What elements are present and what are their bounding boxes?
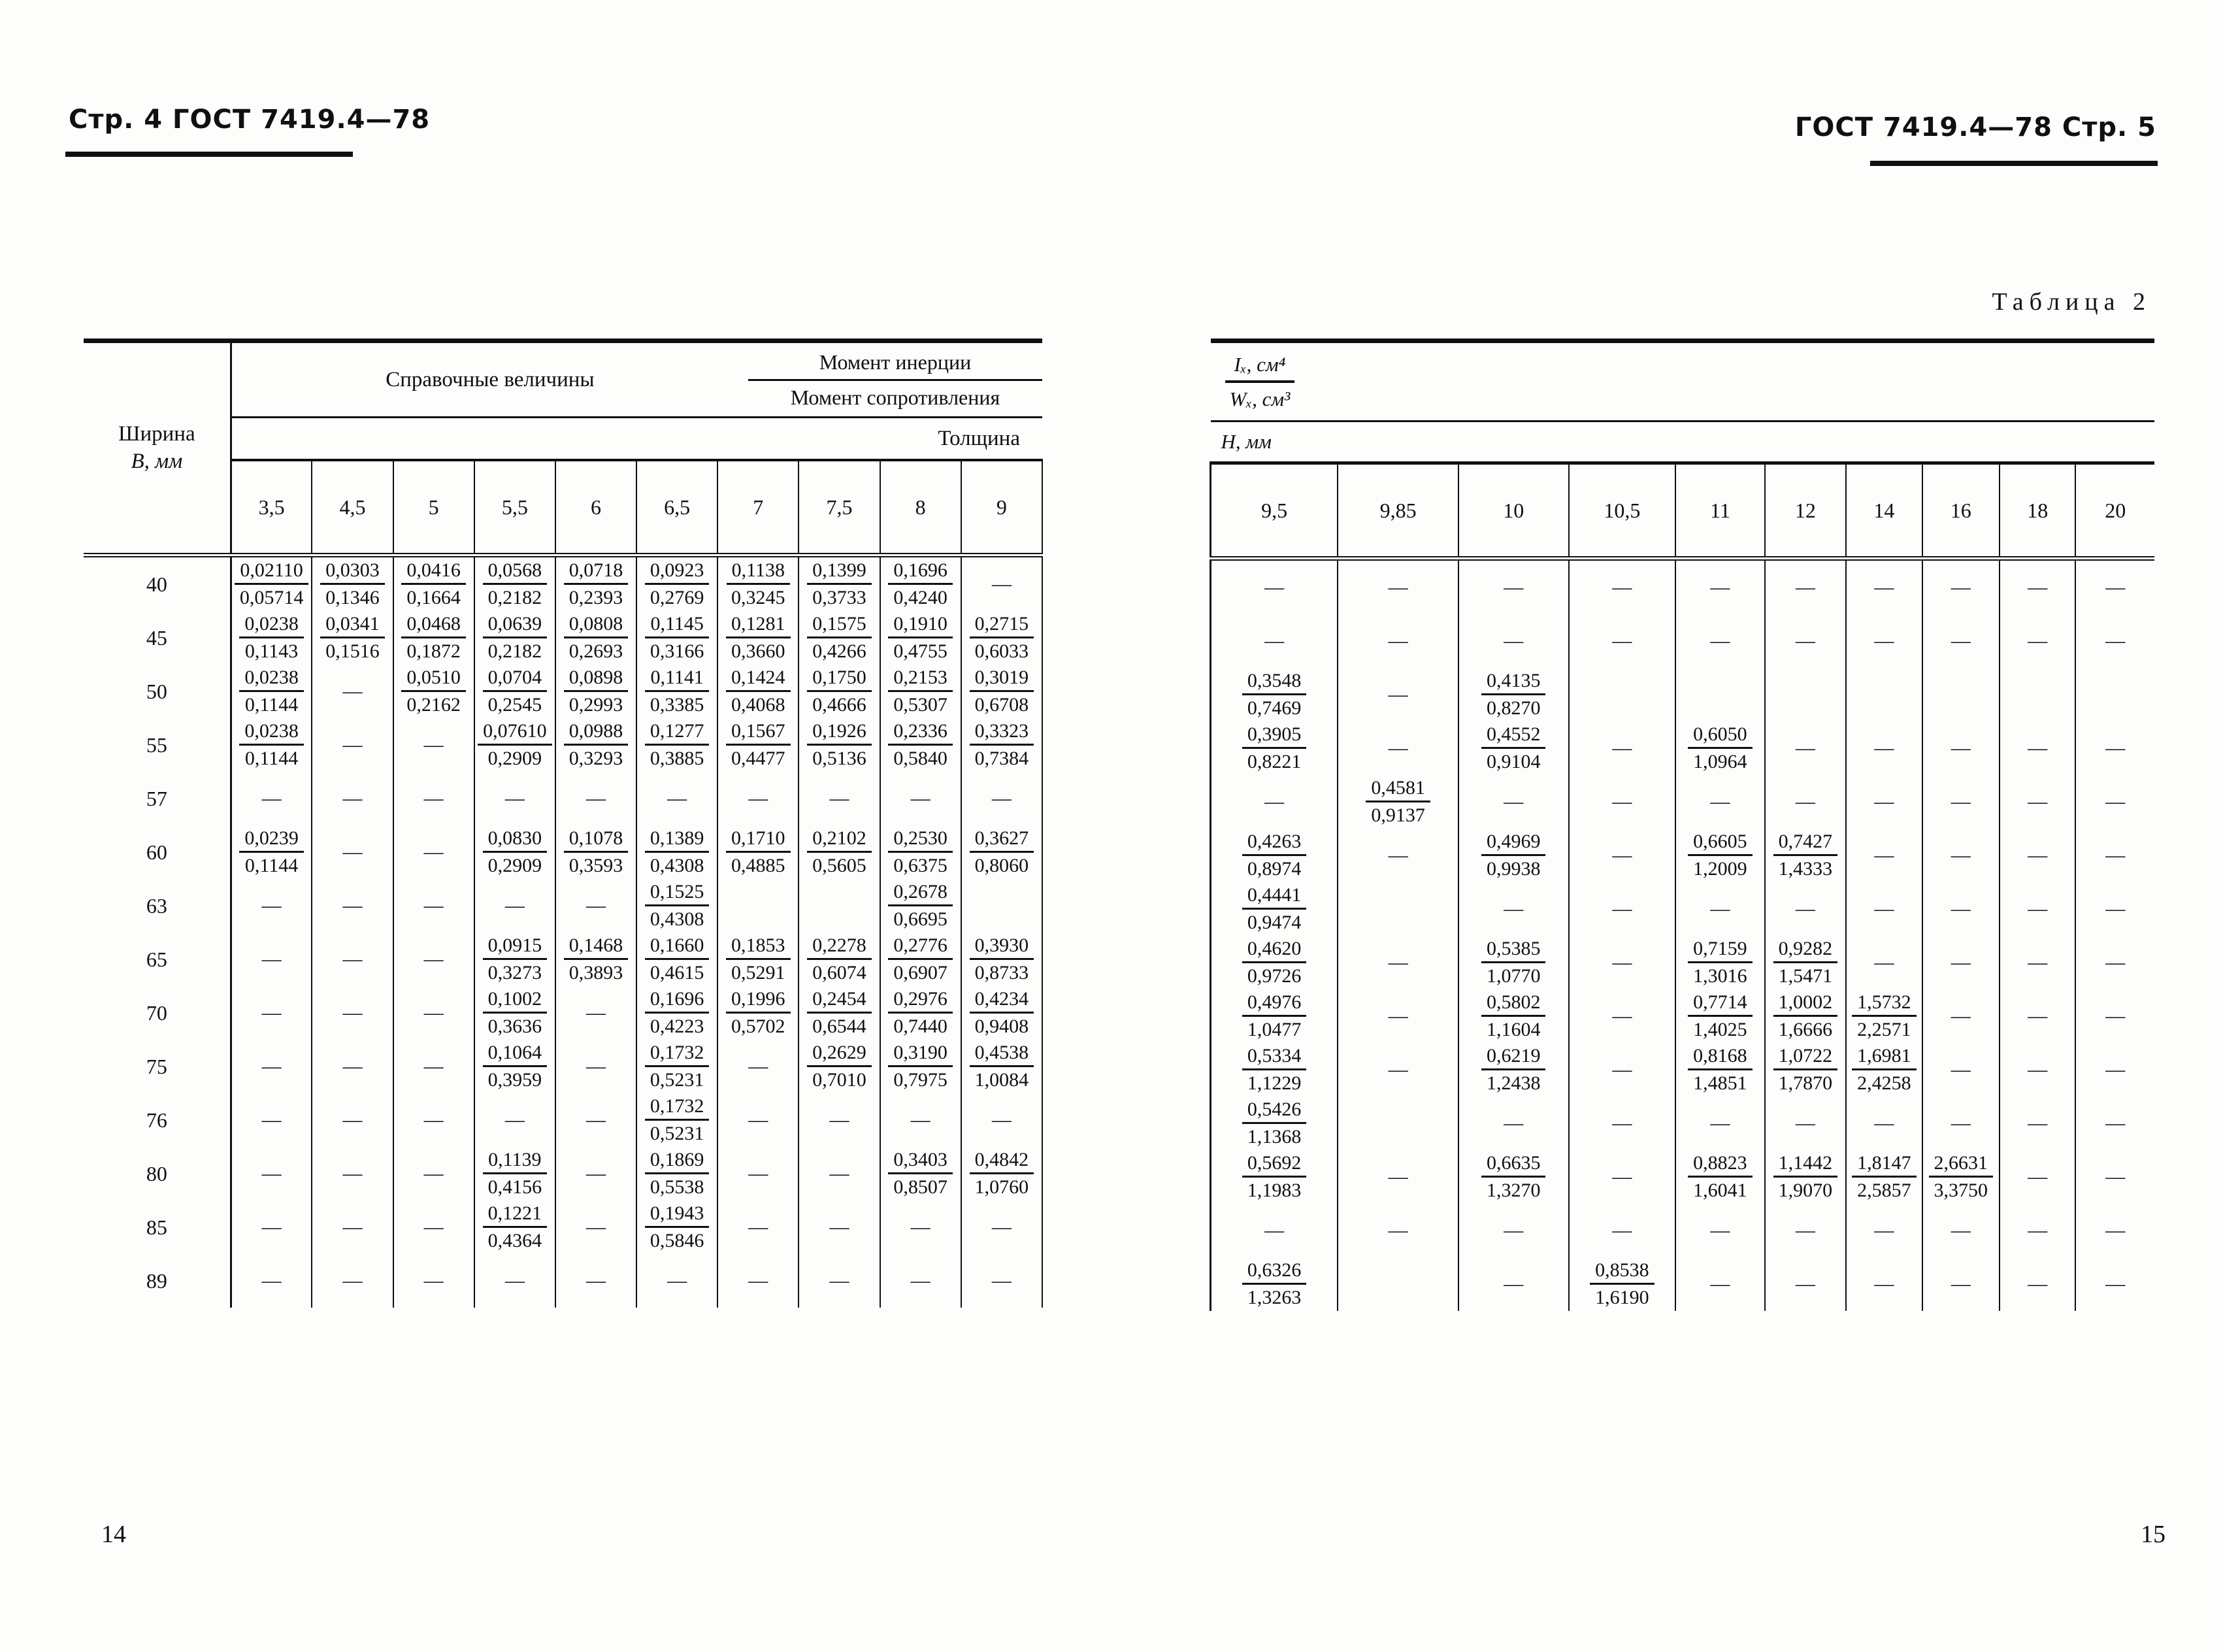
fraction-value: 0,27150,6033 bbox=[970, 613, 1034, 662]
table-cell: — bbox=[1458, 882, 1569, 936]
table-cell: — bbox=[2000, 1257, 2075, 1311]
dash-value: — bbox=[1951, 1059, 1971, 1081]
table-row: 85———0,12210,4364—0,19430,5846———— bbox=[84, 1200, 1042, 1254]
dash-value: — bbox=[343, 1109, 363, 1131]
dash-value: — bbox=[343, 1163, 363, 1185]
column-header: 16 bbox=[1922, 463, 2000, 559]
dash-value: — bbox=[748, 1055, 768, 1078]
table-cell: — bbox=[961, 1093, 1042, 1147]
fraction-value: 0,22780,6074 bbox=[807, 934, 872, 983]
table-cell: 0,15250,4308 bbox=[636, 879, 717, 933]
dash-value: — bbox=[1796, 630, 1815, 652]
table-row: 80———0,11390,4156—0,18690,5538——0,34030,… bbox=[84, 1147, 1042, 1200]
dash-value: — bbox=[1612, 1166, 1632, 1188]
row-label: 57 bbox=[84, 772, 231, 825]
fraction-value: 0,02380,1143 bbox=[239, 613, 304, 662]
right-column-headers: 9,59,851010,5111214161820 bbox=[1211, 463, 2155, 559]
table-cell: — bbox=[1338, 614, 1458, 668]
table-cell: — bbox=[393, 933, 474, 986]
fraction-value: 0,10020,3636 bbox=[483, 988, 548, 1037]
table-cell: 0,34030,8507 bbox=[880, 1147, 961, 1200]
table-row: 0,63261,3263—0,85381,6190—————— bbox=[1211, 1257, 2155, 1311]
table-row: 65———0,09150,32730,14680,38930,16600,461… bbox=[84, 933, 1042, 986]
table-cell: 0,14240,4068 bbox=[717, 665, 799, 718]
table-cell: — bbox=[1569, 1043, 1676, 1097]
fraction-value: 0,09880,3293 bbox=[564, 720, 629, 769]
table-cell: — bbox=[231, 1147, 312, 1200]
table-cell: — bbox=[1458, 614, 1569, 668]
fraction-value: 0,27760,6907 bbox=[888, 934, 953, 983]
column-header: 5 bbox=[393, 460, 474, 555]
dash-value: — bbox=[586, 1216, 606, 1238]
fraction-value: 0,81681,4851 bbox=[1688, 1045, 1753, 1094]
table-cell: — bbox=[961, 1254, 1042, 1308]
fraction-value: 0,16960,4223 bbox=[645, 988, 710, 1037]
table-cell: 0,17320,5231 bbox=[636, 1093, 717, 1147]
row-label: 75 bbox=[84, 1040, 231, 1093]
table-cell: — bbox=[1338, 1150, 1458, 1204]
fraction-value: 0,71591,3016 bbox=[1688, 938, 1753, 987]
table-cell bbox=[1569, 668, 1676, 721]
dash-value: — bbox=[343, 787, 363, 810]
table-cell: 1,07221,7870 bbox=[1765, 1043, 1846, 1097]
fraction-value: 0,41350,8270 bbox=[1481, 670, 1546, 719]
table-row: —————————— bbox=[1211, 559, 2155, 615]
table-cell: 0,44410,9474 bbox=[1211, 882, 1338, 936]
fraction-value: 0,77141,4025 bbox=[1688, 991, 1753, 1040]
table-cell: — bbox=[2075, 829, 2154, 882]
dash-value: — bbox=[2028, 1005, 2047, 1027]
dash-value: — bbox=[992, 1109, 1012, 1131]
table-cell: — bbox=[1569, 1150, 1676, 1204]
table-cell: — bbox=[312, 718, 393, 772]
fraction-value: 0,34030,8507 bbox=[888, 1149, 953, 1198]
dash-value: — bbox=[2105, 630, 2125, 652]
dash-value: — bbox=[992, 573, 1012, 595]
table-row: 89—————————— bbox=[84, 1254, 1042, 1308]
table-cell: — bbox=[636, 1254, 717, 1308]
table-cell: — bbox=[555, 1147, 636, 1200]
fraction-value: 0,09230,2769 bbox=[645, 559, 710, 608]
table-cell: — bbox=[555, 986, 636, 1040]
table-row: 75———0,10640,3959—0,17320,5231—0,26290,7… bbox=[84, 1040, 1042, 1093]
table-cell: — bbox=[312, 879, 393, 933]
dash-value: — bbox=[586, 1163, 606, 1185]
row-label: 89 bbox=[84, 1254, 231, 1308]
table-cell: — bbox=[393, 825, 474, 879]
dash-value: — bbox=[1504, 1112, 1523, 1134]
left-table-body: 400,021100,057140,03030,13460,04160,1664… bbox=[84, 555, 1042, 1308]
dash-value: — bbox=[1264, 630, 1284, 652]
dash-value: — bbox=[1874, 951, 1894, 974]
column-header: 8 bbox=[880, 460, 961, 555]
dash-value: — bbox=[424, 1216, 444, 1238]
dash-value: — bbox=[1264, 791, 1284, 813]
dash-value: — bbox=[343, 734, 363, 756]
dash-value: — bbox=[1264, 1219, 1284, 1242]
ix-label: Iₓ, см⁴ bbox=[1225, 352, 1295, 383]
fraction-value: 0,021100,05714 bbox=[235, 559, 308, 608]
dash-value: — bbox=[1951, 576, 1971, 599]
table-cell: — bbox=[1338, 721, 1458, 775]
table-cell: — bbox=[1675, 614, 1765, 668]
table-cell: — bbox=[2000, 1043, 2075, 1097]
dash-value: — bbox=[1612, 844, 1632, 867]
table-cell: — bbox=[2000, 1150, 2075, 1204]
row-label: 85 bbox=[84, 1200, 231, 1254]
table-cell: — bbox=[1458, 1097, 1569, 1150]
table-cell: — bbox=[1675, 882, 1765, 936]
dash-value: — bbox=[1874, 630, 1894, 652]
dash-value: — bbox=[748, 1109, 768, 1131]
dash-value: — bbox=[1874, 1112, 1894, 1134]
fraction-value: 0,04160,1664 bbox=[401, 559, 466, 608]
table-cell: — bbox=[1846, 1097, 1922, 1150]
table-cell: 0,42630,8974 bbox=[1211, 829, 1338, 882]
column-header: 10,5 bbox=[1569, 463, 1676, 559]
table-cell bbox=[1922, 668, 2000, 721]
fraction-value: 0,29760,7440 bbox=[888, 988, 953, 1037]
table-cell: 0,30190,6708 bbox=[961, 665, 1042, 718]
table-cell: — bbox=[1922, 721, 2000, 775]
column-header: 9,5 bbox=[1211, 463, 1338, 559]
fraction-value: 0,076100,2909 bbox=[478, 720, 552, 769]
column-header: 9 bbox=[961, 460, 1042, 555]
table-row: 0,35480,7469—0,41350,8270 bbox=[1211, 668, 2155, 721]
dash-value: — bbox=[992, 1270, 1012, 1292]
column-header: 5,5 bbox=[474, 460, 555, 555]
table-cell: — bbox=[1765, 882, 1846, 936]
table-cell: 0,56921,1983 bbox=[1211, 1150, 1338, 1204]
table-cell: 0,58021,1604 bbox=[1458, 989, 1569, 1043]
table-cell: — bbox=[2075, 989, 2154, 1043]
table-cell: 0,48421,0760 bbox=[961, 1147, 1042, 1200]
dash-value: — bbox=[1951, 1273, 1971, 1295]
table-cell: 0,02390,1144 bbox=[231, 825, 312, 879]
fraction-value: 0,12210,4364 bbox=[483, 1202, 548, 1251]
table-cell: 0,41350,8270 bbox=[1458, 668, 1569, 721]
right-folio: 15 bbox=[2141, 1520, 2165, 1549]
table-cell: — bbox=[1922, 1257, 2000, 1311]
fraction-value: 0,10640,3959 bbox=[483, 1042, 548, 1091]
table-cell: 1,57322,2571 bbox=[1846, 989, 1922, 1043]
table-row: 0,39050,8221—0,45520,9104—0,60501,0964——… bbox=[1211, 721, 2155, 775]
table-cell: 0,63261,3263 bbox=[1211, 1257, 1338, 1311]
dash-value: — bbox=[586, 787, 606, 810]
table-row: 76—————0,17320,5231———— bbox=[84, 1093, 1042, 1147]
table-cell: — bbox=[2075, 614, 2154, 668]
fraction-value: 0,15670,4477 bbox=[726, 720, 791, 769]
table-cell: 0,19430,5846 bbox=[636, 1200, 717, 1254]
dash-value: — bbox=[1612, 898, 1632, 920]
table-cell: — bbox=[231, 933, 312, 986]
dash-value: — bbox=[1710, 898, 1730, 920]
table-cell: — bbox=[1211, 559, 1338, 615]
dash-value: — bbox=[1612, 1005, 1632, 1027]
dash-value: — bbox=[343, 895, 363, 917]
table-cell: — bbox=[555, 1093, 636, 1147]
table-cell: — bbox=[393, 1093, 474, 1147]
dash-value: — bbox=[1951, 951, 1971, 974]
row-label: 55 bbox=[84, 718, 231, 772]
dash-value: — bbox=[1796, 1112, 1815, 1134]
column-header: 14 bbox=[1846, 463, 1922, 559]
dash-value: — bbox=[424, 1270, 444, 1292]
fraction-value: 0,21530,5307 bbox=[888, 667, 953, 716]
dash-value: — bbox=[262, 1270, 282, 1292]
table-cell: — bbox=[1846, 559, 1922, 615]
table-cell: — bbox=[1765, 1204, 1846, 1257]
dash-value: — bbox=[1612, 1059, 1632, 1081]
column-header: 10 bbox=[1458, 463, 1569, 559]
table-cell: 0,85381,6190 bbox=[1569, 1257, 1676, 1311]
reference-values-label: Справочные величины bbox=[232, 368, 748, 392]
table-cell: 0,11380,3245 bbox=[717, 555, 799, 612]
table-cell: 0,17320,5231 bbox=[636, 1040, 717, 1093]
table-cell: — bbox=[231, 986, 312, 1040]
dash-value: — bbox=[1874, 737, 1894, 759]
table-cell: — bbox=[1675, 1097, 1765, 1150]
table-cell: — bbox=[799, 1093, 880, 1147]
dash-value: — bbox=[1504, 1273, 1523, 1295]
column-header: 6 bbox=[555, 460, 636, 555]
table-cell: — bbox=[1846, 1204, 1922, 1257]
dash-value: — bbox=[2105, 844, 2125, 867]
dash-value: — bbox=[2028, 898, 2047, 920]
table-cell: — bbox=[555, 879, 636, 933]
dash-value: — bbox=[1796, 898, 1815, 920]
table-cell: 0,18690,5538 bbox=[636, 1147, 717, 1200]
dash-value: — bbox=[1951, 844, 1971, 867]
row-label: 63 bbox=[84, 879, 231, 933]
table-cell: 1,14421,9070 bbox=[1765, 1150, 1846, 1204]
wx-label: Wₓ, см³ bbox=[1225, 383, 1295, 411]
table-cell: — bbox=[961, 1200, 1042, 1254]
dash-value: — bbox=[343, 1270, 363, 1292]
table-cell: 0,15750,4266 bbox=[799, 611, 880, 665]
table-row: —————————— bbox=[1211, 1204, 2155, 1257]
table-cell: 0,10640,3959 bbox=[474, 1040, 555, 1093]
table-cell: 0,31900,7975 bbox=[880, 1040, 961, 1093]
table-cell: 0,92821,5471 bbox=[1765, 936, 1846, 989]
dash-value: — bbox=[1612, 951, 1632, 974]
dash-value: — bbox=[1504, 630, 1523, 652]
fraction-value: 0,39300,8733 bbox=[970, 934, 1034, 983]
table-cell: — bbox=[1675, 1257, 1765, 1311]
fraction-value: 0,17100,4885 bbox=[726, 827, 791, 876]
table-cell: 0,81681,4851 bbox=[1675, 1043, 1765, 1097]
dash-value: — bbox=[586, 1270, 606, 1292]
table-cell: — bbox=[1846, 775, 1922, 829]
dash-value: — bbox=[2105, 951, 2125, 974]
moment-resistance-label: Момент сопротивления bbox=[748, 381, 1042, 410]
table-cell: 2,66313,3750 bbox=[1922, 1150, 2000, 1204]
dash-value: — bbox=[262, 1109, 282, 1131]
table-cell: — bbox=[555, 1254, 636, 1308]
fraction-value: 1,00021,6666 bbox=[1773, 991, 1838, 1040]
height-label: Н, мм bbox=[1221, 430, 1272, 453]
fraction-value: 0,24540,6544 bbox=[807, 988, 872, 1037]
dash-value: — bbox=[424, 841, 444, 863]
table-cell bbox=[1675, 668, 1765, 721]
fraction-value: 1,14421,9070 bbox=[1773, 1152, 1838, 1201]
fraction-value: 0,02380,1144 bbox=[239, 720, 304, 769]
fraction-value: 0,18690,5538 bbox=[645, 1149, 710, 1198]
table-cell: 0,53851,0770 bbox=[1458, 936, 1569, 989]
table-cell: — bbox=[799, 1200, 880, 1254]
table-cell: — bbox=[2000, 1204, 2075, 1257]
fraction-value: 0,16600,4615 bbox=[645, 934, 710, 983]
table-cell bbox=[1338, 882, 1458, 936]
dash-value: — bbox=[586, 1002, 606, 1024]
dash-value: — bbox=[2105, 791, 2125, 813]
table-cell: 0,07040,2545 bbox=[474, 665, 555, 718]
table-cell: — bbox=[1765, 775, 1846, 829]
table-row: 70———0,10020,3636—0,16960,42230,19960,57… bbox=[84, 986, 1042, 1040]
fraction-value: 0,66051,2009 bbox=[1688, 831, 1753, 880]
table-cell: 0,45520,9104 bbox=[1458, 721, 1569, 775]
table-cell: 0,42340,9408 bbox=[961, 986, 1042, 1040]
dash-value: — bbox=[505, 1109, 525, 1131]
table-cell: — bbox=[1569, 721, 1676, 775]
dash-value: — bbox=[1612, 737, 1632, 759]
dash-value: — bbox=[1504, 576, 1523, 599]
dash-value: — bbox=[1389, 576, 1408, 599]
table-cell: 0,26780,6695 bbox=[880, 879, 961, 933]
table-cell: — bbox=[231, 772, 312, 825]
dash-value: — bbox=[748, 787, 768, 810]
table-cell: 0,05680,2182 bbox=[474, 555, 555, 612]
dash-value: — bbox=[1504, 1219, 1523, 1242]
fraction-value: 0,17320,5231 bbox=[645, 1042, 710, 1091]
dash-value: — bbox=[1710, 576, 1730, 599]
table-cell: — bbox=[312, 772, 393, 825]
dash-value: — bbox=[343, 1216, 363, 1238]
dash-value: — bbox=[667, 787, 687, 810]
table-cell: — bbox=[880, 1200, 961, 1254]
table-cell: 0,66051,2009 bbox=[1675, 829, 1765, 882]
fraction-value: 0,14680,3893 bbox=[564, 934, 629, 983]
row-label: 80 bbox=[84, 1147, 231, 1200]
fraction-value: 0,05100,2162 bbox=[401, 667, 466, 716]
table-cell: — bbox=[1211, 614, 1338, 668]
fraction-value: 0,92821,5471 bbox=[1773, 938, 1838, 987]
dash-value: — bbox=[1874, 791, 1894, 813]
dash-value: — bbox=[1874, 1219, 1894, 1242]
table-cell: 0,29760,7440 bbox=[880, 986, 961, 1040]
table-cell: 0,62191,2438 bbox=[1458, 1043, 1569, 1097]
table-cell: — bbox=[393, 1040, 474, 1093]
table-cell: — bbox=[312, 933, 393, 986]
table-cell: 0,06390,2182 bbox=[474, 611, 555, 665]
column-header: 20 bbox=[2075, 463, 2154, 559]
table-row: —0,45810,9137———————— bbox=[1211, 775, 2155, 829]
table-cell: — bbox=[1846, 1257, 1922, 1311]
fraction-value: 0,49761,0477 bbox=[1242, 991, 1307, 1040]
dash-value: — bbox=[343, 841, 363, 863]
dash-value: — bbox=[2105, 1059, 2125, 1081]
table-cell: — bbox=[1569, 829, 1676, 882]
table-cell: — bbox=[474, 879, 555, 933]
table-cell: — bbox=[2000, 1097, 2075, 1150]
dash-value: — bbox=[1874, 576, 1894, 599]
fraction-value: 0,19430,5846 bbox=[645, 1202, 710, 1251]
table-cell: 0,23360,5840 bbox=[880, 718, 961, 772]
fraction-value: 0,56921,1983 bbox=[1242, 1152, 1307, 1201]
column-header: 9,85 bbox=[1338, 463, 1458, 559]
fraction-value: 0,39050,8221 bbox=[1242, 723, 1307, 772]
left-page-header: Стр. 4 ГОСТ 7419.4—78 bbox=[69, 105, 430, 135]
dash-value: — bbox=[2028, 576, 2047, 599]
table-cell: 1,81472,5857 bbox=[1846, 1150, 1922, 1204]
dash-value: — bbox=[748, 1270, 768, 1292]
dash-value: — bbox=[424, 948, 444, 970]
fraction-value: 0,12770,3885 bbox=[645, 720, 710, 769]
table-cell: — bbox=[961, 772, 1042, 825]
dash-value: — bbox=[1389, 684, 1408, 706]
table-cell bbox=[1846, 668, 1922, 721]
reference-values-band: Справочные величины Момент инерции Момен… bbox=[231, 341, 1042, 418]
dash-value: — bbox=[2105, 1273, 2125, 1295]
table-cell: — bbox=[2000, 775, 2075, 829]
table-row: 63—————0,15250,43080,26780,6695 bbox=[84, 879, 1042, 933]
table-row: 0,49761,0477—0,58021,1604—0,77141,40251,… bbox=[1211, 989, 2155, 1043]
right-page-header: ГОСТ 7419.4—78 Стр. 5 bbox=[1795, 112, 2156, 142]
dash-value: — bbox=[2028, 1219, 2047, 1242]
ix-wx-band: Iₓ, см⁴ Wₓ, см³ bbox=[1211, 341, 2155, 421]
right-reference-table: Iₓ, см⁴ Wₓ, см³ Н, мм 9,59,851010,511121… bbox=[1210, 339, 2154, 1311]
left-reference-table: Ширина В, мм Справочные величины Момент … bbox=[84, 339, 1043, 1308]
dash-value: — bbox=[343, 948, 363, 970]
table-cell: — bbox=[393, 879, 474, 933]
dash-value: — bbox=[1796, 737, 1815, 759]
fraction-value: 0,11390,4156 bbox=[483, 1149, 546, 1198]
fraction-value: 0,26780,6695 bbox=[888, 881, 953, 930]
fraction-value: 0,11450,3166 bbox=[645, 613, 708, 662]
dash-value: — bbox=[1389, 630, 1408, 652]
table-cell: — bbox=[717, 1200, 799, 1254]
fraction-value: 0,09150,3273 bbox=[483, 934, 548, 983]
column-header: 6,5 bbox=[636, 460, 717, 555]
table-cell: — bbox=[2000, 989, 2075, 1043]
dash-value: — bbox=[911, 787, 930, 810]
fraction-value: 0,45520,9104 bbox=[1481, 723, 1546, 772]
table-cell: — bbox=[717, 1093, 799, 1147]
table-cell: 0,02380,1144 bbox=[231, 718, 312, 772]
table-cell: — bbox=[1569, 882, 1676, 936]
table-cell: — bbox=[1922, 1204, 2000, 1257]
fraction-value: 2,66313,3750 bbox=[1929, 1152, 1994, 1201]
table-row: 0,53341,1229—0,62191,2438—0,81681,48511,… bbox=[1211, 1043, 2155, 1097]
fraction-value: 0,45381,0084 bbox=[970, 1042, 1034, 1091]
table-cell: — bbox=[231, 879, 312, 933]
table-cell: — bbox=[799, 1147, 880, 1200]
fraction-value: 0,02380,1144 bbox=[239, 667, 304, 716]
fraction-value: 0,35480,7469 bbox=[1242, 670, 1307, 719]
table-cell: — bbox=[1846, 882, 1922, 936]
table-cell: — bbox=[1338, 989, 1458, 1043]
fraction-value: 0,03030,1346 bbox=[320, 559, 385, 608]
dash-value: — bbox=[262, 895, 282, 917]
dash-value: — bbox=[505, 895, 525, 917]
table-row: 500,02380,1144—0,05100,21620,07040,25450… bbox=[84, 665, 1042, 718]
table-cell: — bbox=[393, 1147, 474, 1200]
table-cell: — bbox=[1338, 1043, 1458, 1097]
table-caption: Таблица 2 bbox=[1992, 288, 2151, 316]
dash-value: — bbox=[1874, 1273, 1894, 1295]
dash-value: — bbox=[911, 1109, 930, 1131]
table-cell: 0,12770,3885 bbox=[636, 718, 717, 772]
